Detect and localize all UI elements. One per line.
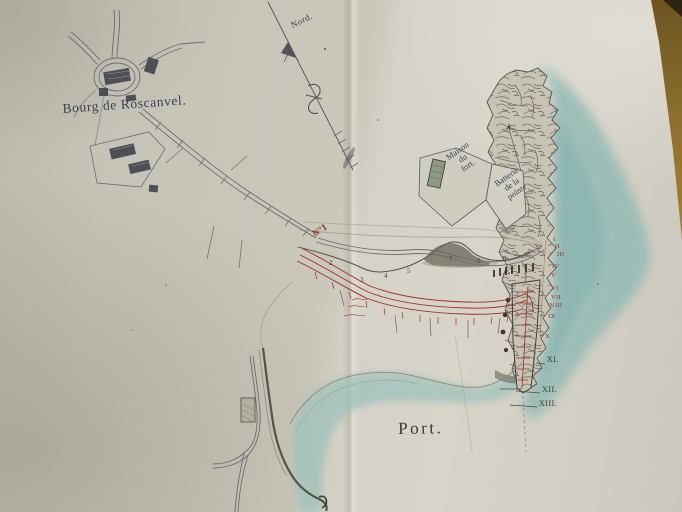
survey-numeral: IV <box>552 263 559 270</box>
survey-numeral: V <box>551 272 556 279</box>
port-label: Port. <box>398 418 443 439</box>
north-arrowhead <box>281 42 296 58</box>
survey-numeral: VIII <box>550 302 562 309</box>
route-station-number: 5 <box>407 267 411 275</box>
route-station-number: 8 <box>477 257 481 265</box>
survey-numeral: III <box>557 251 564 258</box>
survey-numeral: IX <box>548 313 555 320</box>
survey-numeral-dark: XIII. <box>539 399 557 408</box>
survey-dot <box>508 126 511 129</box>
north-arrow <box>268 2 358 170</box>
coast-road <box>213 356 260 512</box>
route-station-number: 3 <box>360 276 364 284</box>
compass-fleur-icon <box>306 84 322 113</box>
route-station-number: 4 <box>384 272 388 280</box>
road-village-to-port <box>139 109 318 348</box>
survey-numeral-dark: XI. <box>547 355 559 364</box>
survey-numeral: VII <box>551 294 561 301</box>
survey-numeral: I <box>553 236 555 243</box>
coast-building <box>241 398 255 422</box>
survey-numeral: VI <box>551 285 558 292</box>
map-photograph: Bourg de Roscanvel. Nord. Maison du fort… <box>0 0 682 512</box>
survey-numeral: II <box>555 243 560 250</box>
survey-numeral: X <box>545 333 550 340</box>
route-station-number: 9 <box>503 255 507 263</box>
route-station-number: 2 <box>329 259 333 267</box>
route-station-number: 7 <box>449 255 453 263</box>
parcel-outline <box>90 132 165 187</box>
survey-numeral-dark: XII. <box>542 385 557 394</box>
map-artwork <box>0 0 682 512</box>
